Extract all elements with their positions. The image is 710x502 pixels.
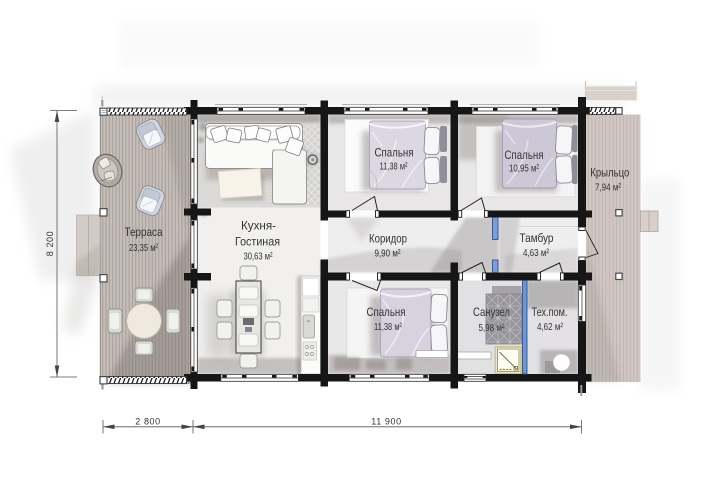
svg-text:Спальня: Спальня — [367, 305, 406, 319]
svg-text:Кухня-: Кухня- — [241, 219, 276, 233]
svg-text:Терраса: Терраса — [125, 225, 163, 239]
svg-text:30,63 м²: 30,63 м² — [244, 251, 273, 263]
svg-text:4,63 м²: 4,63 м² — [523, 247, 549, 259]
svg-text:11,38 м²: 11,38 м² — [374, 321, 402, 333]
svg-text:Коридор: Коридор — [369, 232, 407, 246]
svg-text:Тамбур: Тамбур — [520, 231, 554, 245]
svg-text:23,35 м²: 23,35 м² — [129, 242, 158, 254]
svg-text:5,98 м²: 5,98 м² — [479, 322, 505, 334]
svg-text:8 200: 8 200 — [45, 231, 55, 257]
svg-text:9,90 м²: 9,90 м² — [375, 248, 401, 260]
svg-text:Крыльцо: Крыльцо — [590, 166, 629, 180]
svg-text:2 800: 2 800 — [135, 417, 161, 427]
svg-text:11 900: 11 900 — [371, 417, 401, 427]
svg-text:Гостиная: Гостиная — [235, 235, 280, 249]
svg-text:10,95 м²: 10,95 м² — [509, 163, 539, 175]
svg-text:11,38 м²: 11,38 м² — [380, 161, 408, 173]
svg-text:Спальня: Спальня — [505, 148, 544, 162]
svg-text:Тех.пом.: Тех.пом. — [532, 305, 568, 319]
svg-text:4,62 м²: 4,62 м² — [537, 321, 563, 333]
svg-text:Санузел: Санузел — [473, 305, 510, 319]
svg-text:7,94 м²: 7,94 м² — [595, 182, 621, 194]
svg-text:Спальня: Спальня — [375, 146, 414, 160]
